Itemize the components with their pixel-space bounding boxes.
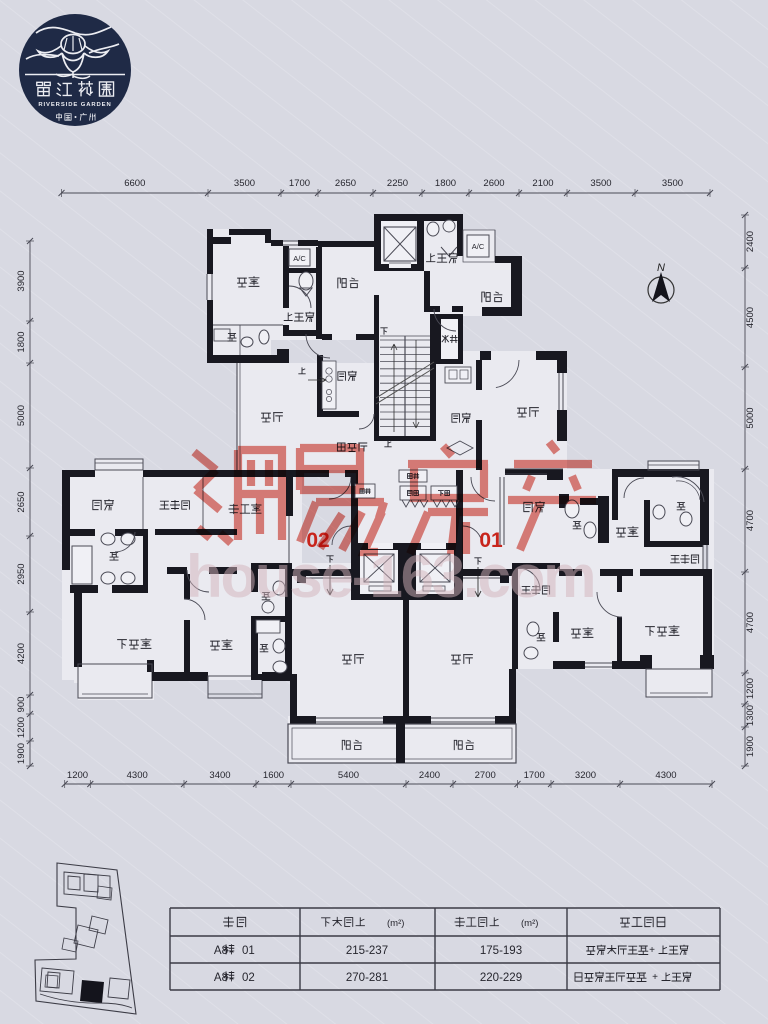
svg-text:1800: 1800: [435, 178, 456, 189]
svg-text:5000: 5000: [745, 407, 756, 428]
svg-text:1200: 1200: [745, 678, 756, 699]
svg-text:175-193: 175-193: [480, 945, 522, 957]
svg-text:house-163.com: house-163.com: [186, 543, 594, 610]
svg-text:A/C: A/C: [293, 254, 306, 263]
svg-text:3900: 3900: [16, 270, 27, 291]
svg-text:1700: 1700: [289, 178, 310, 189]
svg-text:2250: 2250: [387, 178, 408, 189]
svg-text:3500: 3500: [234, 178, 255, 189]
svg-text:3400: 3400: [209, 770, 230, 781]
svg-text:A/C: A/C: [472, 242, 485, 251]
svg-text:1900: 1900: [16, 743, 27, 764]
svg-text:3500: 3500: [662, 178, 683, 189]
svg-text:2650: 2650: [335, 178, 356, 189]
svg-text:1700: 1700: [524, 770, 545, 781]
svg-text:4500: 4500: [745, 307, 756, 328]
svg-text:3500: 3500: [590, 178, 611, 189]
svg-text:2950: 2950: [16, 563, 27, 584]
svg-text:215-237: 215-237: [346, 945, 388, 957]
svg-text:4300: 4300: [655, 770, 676, 781]
svg-text:5000: 5000: [16, 405, 27, 426]
svg-text:2400: 2400: [419, 770, 440, 781]
svg-text:5400: 5400: [338, 770, 359, 781]
svg-text:2600: 2600: [483, 178, 504, 189]
svg-text:2400: 2400: [745, 231, 756, 252]
svg-text:4700: 4700: [745, 510, 756, 531]
svg-text:1200: 1200: [67, 770, 88, 781]
svg-text:+: +: [652, 972, 658, 983]
svg-text:1800: 1800: [16, 331, 27, 352]
svg-text:(m²): (m²): [521, 918, 538, 929]
svg-text:N: N: [657, 262, 665, 274]
svg-text:6600: 6600: [124, 178, 145, 189]
svg-text:1600: 1600: [263, 770, 284, 781]
svg-text:2100: 2100: [532, 178, 553, 189]
svg-text:4300: 4300: [127, 770, 148, 781]
svg-text:1200: 1200: [16, 717, 27, 738]
svg-text:2700: 2700: [475, 770, 496, 781]
svg-text:3200: 3200: [575, 770, 596, 781]
svg-text:4200: 4200: [16, 643, 27, 664]
svg-text:01: 01: [242, 945, 255, 957]
svg-text:1300: 1300: [745, 705, 756, 726]
svg-text:02: 02: [242, 972, 255, 984]
svg-text:900: 900: [16, 697, 27, 713]
svg-text:1900: 1900: [745, 736, 756, 757]
svg-text:(m²): (m²): [387, 918, 404, 929]
svg-text:220-229: 220-229: [480, 972, 522, 984]
svg-text:+: +: [649, 945, 655, 956]
svg-text:2650: 2650: [16, 491, 27, 512]
svg-text:RIVERSIDE GARDEN: RIVERSIDE GARDEN: [38, 102, 111, 108]
svg-text:270-281: 270-281: [346, 972, 388, 984]
svg-text:4700: 4700: [745, 612, 756, 633]
